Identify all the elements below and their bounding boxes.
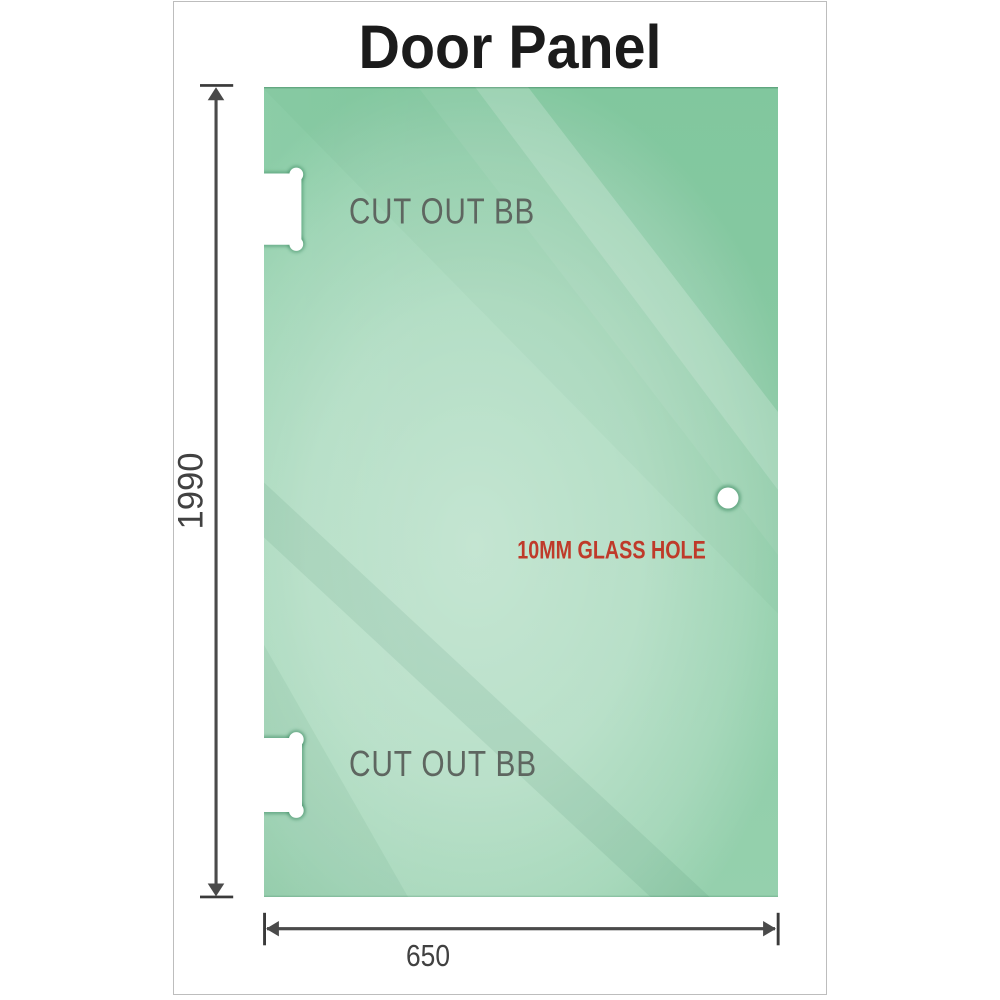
svg-text:650: 650 bbox=[406, 938, 450, 973]
svg-text:10MM GLASS HOLE: 10MM GLASS HOLE bbox=[517, 537, 706, 565]
svg-text:CUT OUT BB: CUT OUT BB bbox=[349, 191, 535, 232]
svg-text:Door Panel: Door Panel bbox=[359, 13, 662, 81]
svg-text:1990: 1990 bbox=[171, 453, 211, 530]
svg-text:CUT OUT BB: CUT OUT BB bbox=[349, 743, 537, 784]
